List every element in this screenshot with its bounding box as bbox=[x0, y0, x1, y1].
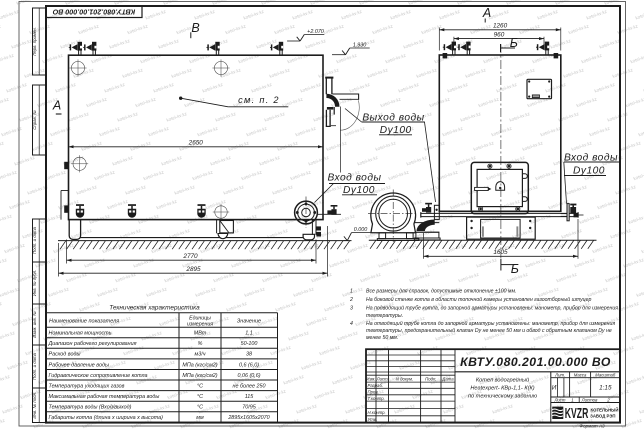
svg-text:4: 4 bbox=[350, 321, 353, 327]
svg-text:На боковой стенке котла в обла: На боковой стенке котла в области топочн… bbox=[366, 296, 592, 303]
svg-text:МПа (кгс/см2): МПа (кгс/см2) bbox=[182, 362, 217, 368]
svg-text:2895: 2895 bbox=[185, 266, 201, 273]
svg-text:температуры, предохранительный: температуры, предохранительный клапан Dу… bbox=[366, 327, 612, 334]
svg-text:измерения: измерения bbox=[187, 322, 213, 328]
svg-text:по техническому заданию: по техническому заданию bbox=[468, 393, 538, 399]
svg-text:Диапазон рабочего регулировани: Диапазон рабочего регулирования bbox=[48, 341, 137, 347]
svg-text:1: 1 bbox=[350, 289, 353, 295]
svg-text:мм: мм bbox=[196, 415, 204, 421]
svg-text:Инв. № подл.: Инв. № подл. bbox=[32, 392, 37, 419]
svg-text:Максимальная рабочая температу: Максимальная рабочая температура воды bbox=[49, 394, 160, 400]
svg-text:2: 2 bbox=[349, 297, 353, 303]
svg-text:Формат А3: Формат А3 bbox=[579, 424, 605, 429]
svg-text:1,1: 1,1 bbox=[245, 331, 253, 337]
svg-text:Лист: Лист bbox=[553, 398, 565, 403]
svg-text:Листов: Листов bbox=[581, 398, 598, 403]
svg-text:А: А bbox=[52, 99, 61, 113]
svg-text:Подп.: Подп. bbox=[425, 377, 436, 382]
svg-text:Температура воды (Вход/выход): Температура воды (Вход/выход) bbox=[49, 405, 132, 411]
svg-text:Подп. и дата: Подп. и дата bbox=[32, 352, 37, 380]
svg-text:115: 115 bbox=[245, 394, 255, 400]
svg-text:1:15: 1:15 bbox=[599, 384, 612, 391]
svg-text:Изм.: Изм. bbox=[366, 377, 375, 382]
svg-text:КВТУ.080.201.00.000 ВО: КВТУ.080.201.00.000 ВО bbox=[52, 8, 135, 17]
svg-text:Пров.: Пров. bbox=[368, 390, 379, 395]
svg-text:%: % bbox=[198, 341, 203, 347]
svg-text:На подводящий трубе котла,: На подводящий трубе котла, до запорной а… bbox=[366, 304, 618, 311]
svg-text:°С: °С bbox=[197, 394, 203, 400]
svg-text:Гидравлическое сопротивление к: Гидравлическое сопротивление котла bbox=[49, 373, 148, 379]
svg-text:см. п. 2: см. п. 2 bbox=[238, 95, 280, 105]
svg-text:Т.контр.: Т.контр. bbox=[368, 396, 385, 401]
svg-text:Б: Б bbox=[511, 262, 519, 276]
svg-text:м3/ч: м3/ч bbox=[195, 352, 206, 358]
svg-text:Габариты котла (длина х ширина: Габариты котла (длина х ширина х высота) bbox=[49, 415, 164, 421]
svg-text:И: И bbox=[552, 384, 557, 391]
svg-text:КОТЕЛЬНЫЙ: КОТЕЛЬНЫЙ bbox=[591, 408, 619, 413]
svg-text:Техническая характеристика: Техническая характеристика bbox=[109, 304, 200, 311]
svg-text:Подп. и дата: Подп. и дата bbox=[32, 226, 37, 254]
svg-text:Котел водогрейный: Котел водогрейный bbox=[476, 376, 529, 383]
svg-text:2895х1605х2070: 2895х1605х2070 bbox=[227, 415, 269, 421]
svg-text:КВТУ.080.201.00.000 ВО: КВТУ.080.201.00.000 ВО bbox=[460, 355, 611, 369]
svg-text:Единицы: Единицы bbox=[189, 315, 211, 321]
svg-text:Справ. №: Справ. № bbox=[32, 110, 37, 130]
svg-text:Разраб.: Разраб. bbox=[368, 383, 384, 388]
svg-text:Dy100: Dy100 bbox=[573, 166, 605, 177]
svg-text:960: 960 bbox=[494, 31, 505, 38]
svg-text:Dy100: Dy100 bbox=[343, 185, 375, 196]
svg-text:Значение: Значение bbox=[237, 319, 261, 325]
svg-text:0,06 (0,6): 0,06 (0,6) bbox=[237, 373, 260, 379]
svg-text:ЗАВОД РЭП: ЗАВОД РЭП bbox=[590, 414, 615, 419]
svg-text:38: 38 bbox=[246, 352, 252, 358]
svg-text:МВт: МВт bbox=[194, 331, 207, 337]
svg-text:В: В bbox=[191, 21, 199, 35]
svg-text:Масштаб: Масштаб bbox=[595, 373, 616, 378]
svg-text:1260: 1260 bbox=[493, 23, 508, 30]
svg-text:Инв. № дубл.: Инв. № дубл. bbox=[32, 270, 37, 296]
svg-text:N докум.: N докум. bbox=[396, 377, 413, 382]
svg-text:Вход воды: Вход воды bbox=[328, 173, 382, 184]
svg-text:Рабочее давление воды: Рабочее давление воды bbox=[49, 362, 109, 368]
svg-text:3: 3 bbox=[350, 305, 353, 311]
svg-text:Б: Б bbox=[510, 36, 518, 50]
svg-text:Масса: Масса bbox=[574, 373, 587, 378]
svg-text:менее 50 мм.: менее 50 мм. bbox=[366, 335, 398, 341]
svg-text:Утв.: Утв. bbox=[368, 417, 378, 422]
svg-text:Температура уходящих газов: Температура уходящих газов bbox=[49, 383, 125, 389]
svg-text:70/95: 70/95 bbox=[242, 405, 256, 411]
svg-text:Все размеры для справок, допус: Все размеры для справок, допустимые откл… bbox=[366, 289, 516, 295]
svg-text:температуры.: температуры. bbox=[366, 313, 403, 319]
svg-text:2770: 2770 bbox=[182, 253, 198, 260]
svg-text:Дата: Дата bbox=[441, 377, 454, 382]
svg-text:KVZR: KVZR bbox=[565, 406, 589, 422]
svg-text:°С: °С bbox=[197, 383, 203, 389]
svg-text:Наименование показателя: Наименование показателя bbox=[49, 319, 119, 325]
svg-text:50-100: 50-100 bbox=[241, 341, 258, 347]
svg-text:Номинальная мощность: Номинальная мощность bbox=[49, 331, 112, 337]
svg-text:Взам. инв. №: Взам. инв. № bbox=[32, 311, 37, 338]
svg-text:На отводящий трубе котла до за: На отводящий трубе котла до запорной арм… bbox=[366, 320, 615, 327]
svg-text:А: А bbox=[482, 6, 491, 20]
svg-text:2650: 2650 bbox=[188, 140, 204, 147]
svg-text:не более 250: не более 250 bbox=[233, 383, 266, 389]
svg-text:0,6 (6,0): 0,6 (6,0) bbox=[239, 362, 259, 368]
svg-text:Расход воды: Расход воды bbox=[49, 352, 81, 358]
svg-text:Н.контр.: Н.контр. bbox=[368, 410, 386, 415]
svg-text:Лит.: Лит. bbox=[554, 373, 565, 378]
svg-text:Лист: Лист bbox=[376, 377, 388, 382]
svg-text:Перв. примен.: Перв. примен. bbox=[32, 27, 37, 56]
svg-text:1605: 1605 bbox=[493, 249, 508, 256]
svg-text:Heatexpert- КВр-1,1- К(К): Heatexpert- КВр-1,1- К(К) bbox=[470, 386, 534, 392]
svg-text:°С: °С bbox=[197, 405, 203, 411]
svg-text:МПа (кгс/см2): МПа (кгс/см2) bbox=[182, 373, 217, 379]
